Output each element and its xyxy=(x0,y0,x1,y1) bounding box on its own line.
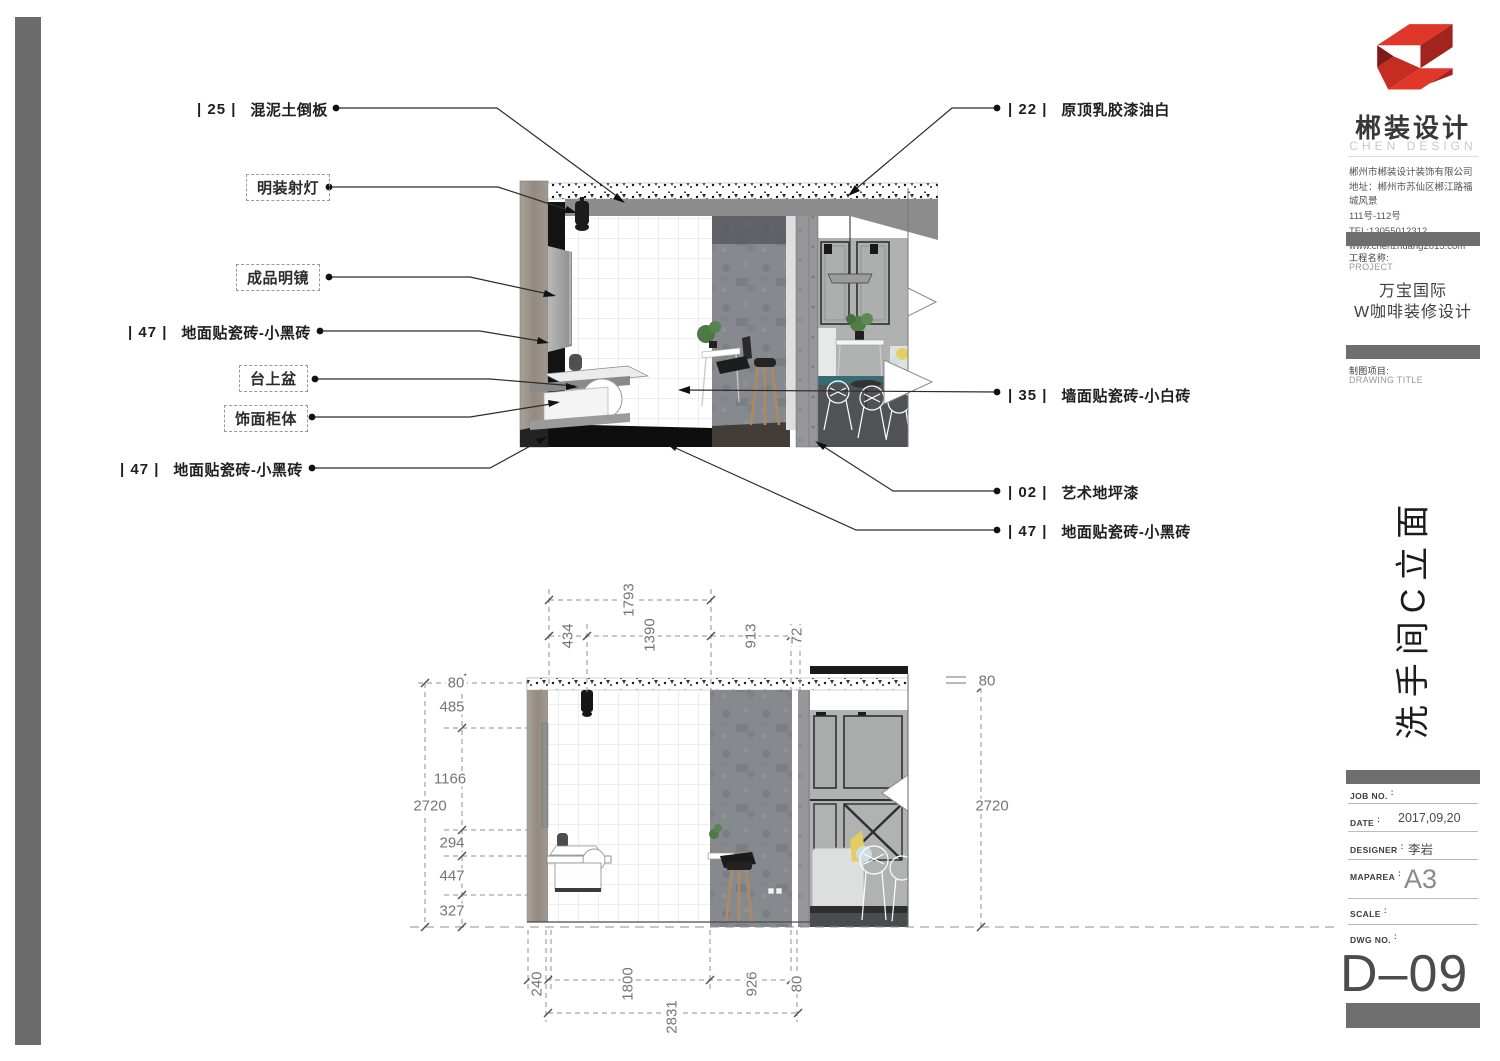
field-divider xyxy=(1348,831,1478,832)
company-line: 111号-112号 xyxy=(1349,210,1479,225)
project-label-en: PROJECT xyxy=(1349,262,1393,272)
dim-bottom: 926 xyxy=(745,969,760,998)
field-label-text: DESIGNER xyxy=(1350,845,1398,855)
plant-pot xyxy=(709,341,717,348)
field-label-job-no: JOB NO.: xyxy=(1350,791,1394,801)
mirror xyxy=(548,246,572,352)
callout-concrete-slab: | 25 | 混泥土倒板 xyxy=(197,99,328,120)
callout-text: 地面贴瓷砖-小黑砖 xyxy=(181,322,311,343)
dim-left: 447 xyxy=(437,869,466,884)
callout-art-floor-paint: | 02 | 艺术地坪漆 xyxy=(1008,482,1139,503)
table xyxy=(836,340,884,345)
drawing-title-label-en: DRAWING TITLE xyxy=(1349,375,1423,385)
pendant-lamp xyxy=(828,274,872,283)
title-block: 郴装设计 CHEN DESIGN 郴州市郴装设计装饰有限公司 地址：郴州市苏仙区… xyxy=(1346,0,1480,1061)
callout-floor-tile-1: | 47 | 地面贴瓷砖-小黑砖 xyxy=(128,322,311,343)
field-colon: : xyxy=(1384,906,1387,915)
dim-left: 294 xyxy=(437,836,466,851)
level-marks xyxy=(946,677,966,683)
callout-code: | 25 | xyxy=(197,101,236,118)
callout-text: 明装射灯 xyxy=(246,174,330,201)
field-colon: : xyxy=(1394,932,1397,941)
dim-left: 80 xyxy=(446,676,467,691)
callout-text: 原顶乳胶漆油白 xyxy=(1061,99,1170,120)
dim-left: 485 xyxy=(437,700,466,715)
field-colon: : xyxy=(1391,788,1394,797)
dim-right: 80 xyxy=(977,674,998,689)
divider xyxy=(1348,156,1478,157)
spotlight xyxy=(581,690,593,717)
dim-top: 72 xyxy=(790,626,805,647)
field-label-text: MAPAREA xyxy=(1350,872,1395,882)
concrete-shadow xyxy=(712,216,790,244)
callout-basin: 台上盆 xyxy=(239,365,308,392)
ceiling-slab-speckle xyxy=(527,678,908,690)
field-label-designer: DESIGNER: xyxy=(1350,845,1404,855)
drawing-title: 洗手间C立面 xyxy=(1386,497,1435,740)
field-value-date: 2017,09,20 xyxy=(1398,811,1461,825)
black-floor-band xyxy=(548,424,712,447)
elevation-render-dimensioned xyxy=(518,664,920,927)
field-divider xyxy=(1348,924,1478,925)
callout-text: 艺术地坪漆 xyxy=(1061,482,1139,503)
concrete-strip xyxy=(798,690,810,927)
project-name: W咖啡装修设计 xyxy=(1346,298,1480,322)
dim-top: 434 xyxy=(561,621,576,650)
dim-left-overall: 2720 xyxy=(411,799,448,814)
section-bar xyxy=(1346,770,1480,784)
dim-top: 1390 xyxy=(643,616,658,653)
speaker-box xyxy=(824,244,832,254)
concrete-pillar xyxy=(796,185,818,447)
drawing-sheet: | 25 | 混泥土倒板 明装射灯 成品明镜 | 47 | 地面贴瓷砖-小黑砖 … xyxy=(0,0,1500,1061)
dim-left: 327 xyxy=(437,904,466,919)
plant xyxy=(714,824,722,832)
callout-floor-tile-2: | 47 | 地面贴瓷砖-小黑砖 xyxy=(120,459,303,480)
section-bar xyxy=(1346,1003,1480,1028)
socket xyxy=(776,888,782,894)
brand-logo-icon xyxy=(1368,16,1460,104)
top-black-band xyxy=(810,666,908,674)
door-frame xyxy=(786,216,796,430)
mirror xyxy=(542,723,548,827)
callout-code: | 22 | xyxy=(1008,101,1047,118)
socket xyxy=(768,888,774,894)
dim-bottom: 80 xyxy=(790,974,805,995)
callout-text: 地面贴瓷砖-小黑砖 xyxy=(1061,521,1191,542)
kettle xyxy=(569,354,582,371)
callout-wall-tile: | 35 | 墙面贴瓷砖-小白砖 xyxy=(1008,385,1191,406)
section-bar xyxy=(1346,345,1480,359)
dark-floor xyxy=(712,422,790,447)
callout-code: | 47 | xyxy=(128,324,167,341)
field-divider xyxy=(1348,803,1478,804)
callout-text: 饰面柜体 xyxy=(224,405,308,432)
speaker-box xyxy=(870,244,878,254)
field-value-maparea: A3 xyxy=(1404,864,1437,895)
field-label-scale: SCALE: xyxy=(1350,909,1387,919)
callout-text: 成品明镜 xyxy=(236,264,320,291)
ceiling-band xyxy=(565,199,938,216)
stool-seat xyxy=(726,862,752,870)
cafe-floor xyxy=(810,913,908,927)
field-divider xyxy=(1348,898,1478,899)
ceiling-slab-speckle xyxy=(548,183,938,199)
cafe-area xyxy=(818,216,910,447)
elevation-render-perspective xyxy=(518,178,938,450)
plant xyxy=(709,321,721,333)
company-line: 地址：郴州市苏仙区郴江路福城风景 xyxy=(1349,181,1479,210)
cafe-white-band xyxy=(810,690,908,710)
field-label-text: SCALE xyxy=(1350,909,1381,919)
plant-pot xyxy=(855,331,864,340)
callout-code: | 35 | xyxy=(1008,387,1047,404)
wall-gap xyxy=(792,690,798,927)
callout-mirror: 成品明镜 xyxy=(236,264,320,291)
dim-top: 913 xyxy=(744,621,759,650)
section-break-arrow xyxy=(908,288,936,316)
field-label-date: DATE: xyxy=(1350,818,1380,828)
brand-name-en: CHEN DESIGN xyxy=(1346,139,1480,153)
wall-panel xyxy=(844,716,902,788)
field-colon: : xyxy=(1377,815,1380,824)
callout-ceiling-paint: | 22 | 原顶乳胶漆油白 xyxy=(1008,99,1170,120)
section-bar xyxy=(1346,232,1480,246)
dim-bottom: 1800 xyxy=(621,965,636,1002)
plant xyxy=(861,313,873,325)
callout-text: 墙面贴瓷砖-小白砖 xyxy=(1061,385,1191,406)
company-line: 郴州市郴装设计装饰有限公司 xyxy=(1349,166,1479,181)
field-label-maparea: MAPAREA: xyxy=(1350,872,1401,882)
field-value-designer: 李岩 xyxy=(1408,839,1433,858)
callout-code: | 47 | xyxy=(120,461,159,478)
cabinet-base xyxy=(555,888,601,892)
dim-right: 2720 xyxy=(973,799,1010,814)
dim-bottom: 240 xyxy=(530,969,545,998)
wall-panel xyxy=(814,716,836,788)
field-label-text: JOB NO. xyxy=(1350,791,1388,801)
field-divider xyxy=(1348,859,1478,860)
left-margin-bar xyxy=(15,17,41,1045)
callout-spotlight: 明装射灯 xyxy=(246,174,330,201)
dim-top-overall: 1793 xyxy=(622,581,637,618)
cabinet xyxy=(555,863,601,890)
callout-code: | 47 | xyxy=(1008,523,1047,540)
plant xyxy=(846,314,856,324)
stool-seat xyxy=(754,358,776,367)
callout-text: 混泥土倒板 xyxy=(250,99,328,120)
callout-code: | 02 | xyxy=(1008,484,1047,501)
drawing-number: D–09 xyxy=(1340,944,1468,1004)
callout-cabinet: 饰面柜体 xyxy=(224,405,308,432)
dim-left: 1166 xyxy=(432,772,468,787)
field-label-text: DATE xyxy=(1350,818,1374,828)
field-colon: : xyxy=(1398,869,1401,878)
spotlight xyxy=(575,197,589,231)
dim-bottom-overall: 2831 xyxy=(665,998,680,1035)
callout-text: 地面贴瓷砖-小黑砖 xyxy=(173,459,303,480)
field-colon: : xyxy=(1401,842,1404,851)
callout-floor-tile-3: | 47 | 地面贴瓷砖-小黑砖 xyxy=(1008,521,1191,542)
callout-text: 台上盆 xyxy=(239,365,308,392)
